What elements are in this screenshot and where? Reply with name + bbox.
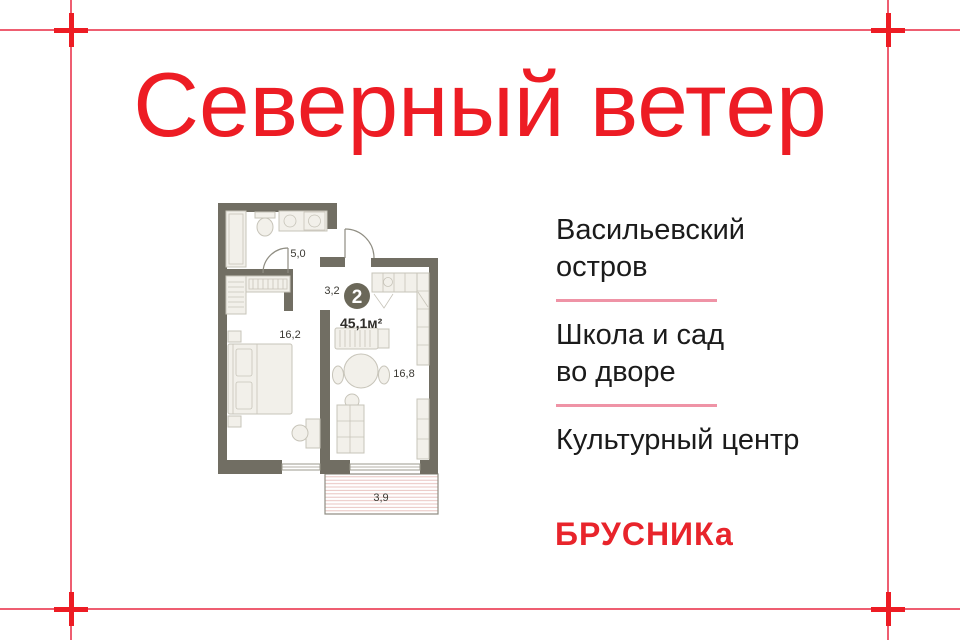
feature-culture: Культурный центр <box>556 422 799 459</box>
label-balcony-area: 3,9 <box>373 492 388 504</box>
divider <box>556 299 717 302</box>
label-bathroom-area: 5,0 <box>290 248 305 260</box>
feature-line: Васильевский <box>556 212 745 249</box>
windows <box>282 464 420 470</box>
label-bedroom-area: 16,2 <box>279 329 300 341</box>
bedroom-furniture <box>226 276 320 448</box>
bathroom-fixtures <box>226 211 327 267</box>
label-hallway-area: 3,2 <box>324 285 339 297</box>
divider <box>556 404 717 407</box>
entry-door-arc <box>345 229 374 258</box>
feature-location: Васильевский остров <box>556 212 745 286</box>
feature-line: во дворе <box>556 354 724 391</box>
brand-logo: БРУСНИКа <box>555 516 734 553</box>
feature-school: Школа и сад во дворе <box>556 317 724 391</box>
poster: Северный ветер <box>0 0 960 640</box>
feature-line: Школа и сад <box>556 317 724 354</box>
feature-line: Культурный центр <box>556 422 799 459</box>
label-living-area: 16,8 <box>393 368 414 380</box>
rooms-count: 2 <box>352 287 363 308</box>
rooms-badge: 2 <box>344 283 370 309</box>
walls <box>218 203 438 474</box>
total-area: 45,1м² <box>340 315 383 331</box>
floorplan: 5,0 3,2 16,2 16,8 3,9 2 45,1м² <box>0 0 960 640</box>
feature-line: остров <box>556 249 745 286</box>
